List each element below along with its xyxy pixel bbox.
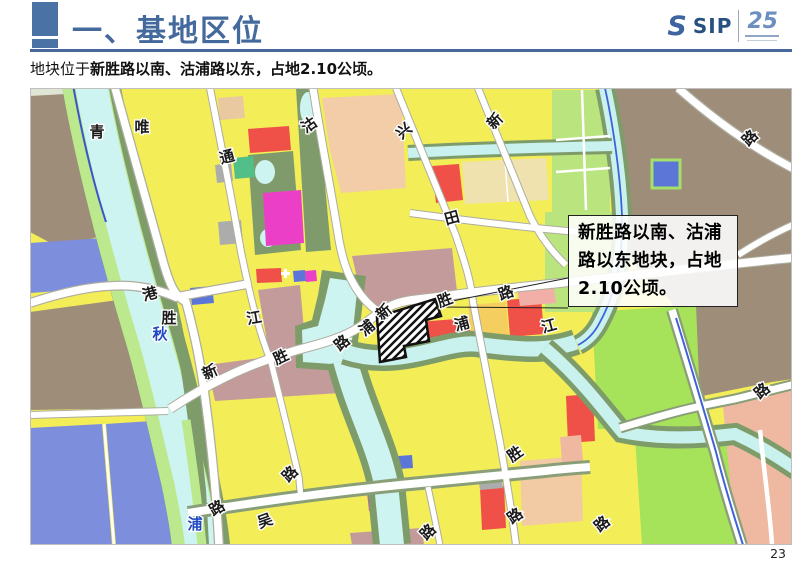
title-decoration-square bbox=[32, 2, 58, 36]
river-label: 浦 bbox=[187, 515, 202, 533]
map-label: 青 bbox=[89, 123, 104, 141]
river-label: 秋 bbox=[152, 325, 168, 343]
site-callout: 新胜路以南、沽浦 路以东地块，占地 2.10公顷。 bbox=[568, 215, 738, 307]
header-rule bbox=[30, 49, 792, 52]
title-decoration-bar bbox=[32, 39, 58, 48]
callout-line: 2.10公顷。 bbox=[578, 275, 728, 303]
callout-line: 新胜路以南、沽浦 bbox=[578, 219, 728, 247]
sip-logo-text: SIP bbox=[693, 16, 733, 36]
subtitle: 地块位于新胜路以南、沽浦路以东，占地2.10公顷。 bbox=[30, 58, 382, 79]
callout-line: 路以东地块，占地 bbox=[578, 247, 728, 275]
site-location-map: 青 唯 沽 通 兴 新 路 田 港 胜 秋 江 新 胜 路 浦 新 胜 路 浦 … bbox=[30, 88, 792, 545]
sip-s-icon: S bbox=[667, 13, 686, 40]
logo-divider bbox=[738, 10, 739, 42]
slide: 一、基地区位 S SIP 25 地块位于新胜路以南、沽浦路以东，占地2.10公顷… bbox=[0, 0, 800, 565]
map-label: 江 bbox=[245, 308, 263, 328]
page-title: 一、基地区位 bbox=[72, 6, 264, 50]
subtitle-suffix: ，占地2.10公顷。 bbox=[255, 60, 382, 78]
subtitle-emphasis: 新胜路以南、沽浦路以东 bbox=[90, 60, 255, 78]
page-number: 23 bbox=[770, 546, 786, 561]
map-label: 唯 bbox=[134, 118, 149, 136]
anniversary-25-logo: 25 bbox=[745, 11, 782, 41]
sip-logo: S SIP 25 bbox=[667, 10, 782, 42]
subtitle-prefix: 地块位于 bbox=[30, 60, 90, 78]
